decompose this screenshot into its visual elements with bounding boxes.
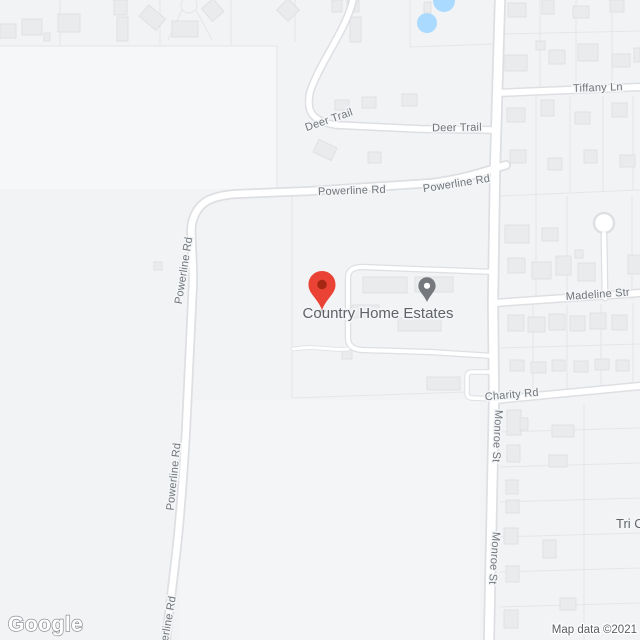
- road-culdesac-bulb: [596, 215, 612, 231]
- place-label-tri-c[interactable]: Tri C: [616, 516, 640, 531]
- poi-pin-dot: [424, 283, 430, 289]
- map-viewport[interactable]: Deer Trail Deer Trail Powerline Rd Power…: [0, 0, 640, 640]
- map-attribution: Map data ©2021: [552, 624, 637, 636]
- road-label-deer-trail: Deer Trail: [432, 122, 482, 135]
- road-label-powerline-rd: Powerline Rd: [318, 184, 386, 198]
- road-estates-spur: [293, 348, 348, 350]
- pin-inner-dot: [317, 280, 327, 290]
- open-field: [0, 46, 277, 189]
- map-canvas[interactable]: Deer Trail Deer Trail Powerline Rd Power…: [0, 0, 640, 640]
- road-label-tiffany-ln: Tiffany Ln: [573, 81, 623, 95]
- open-field: [180, 400, 480, 640]
- google-logo[interactable]: Google: [8, 613, 83, 636]
- place-label-country-home-estates[interactable]: Country Home Estates: [303, 305, 454, 322]
